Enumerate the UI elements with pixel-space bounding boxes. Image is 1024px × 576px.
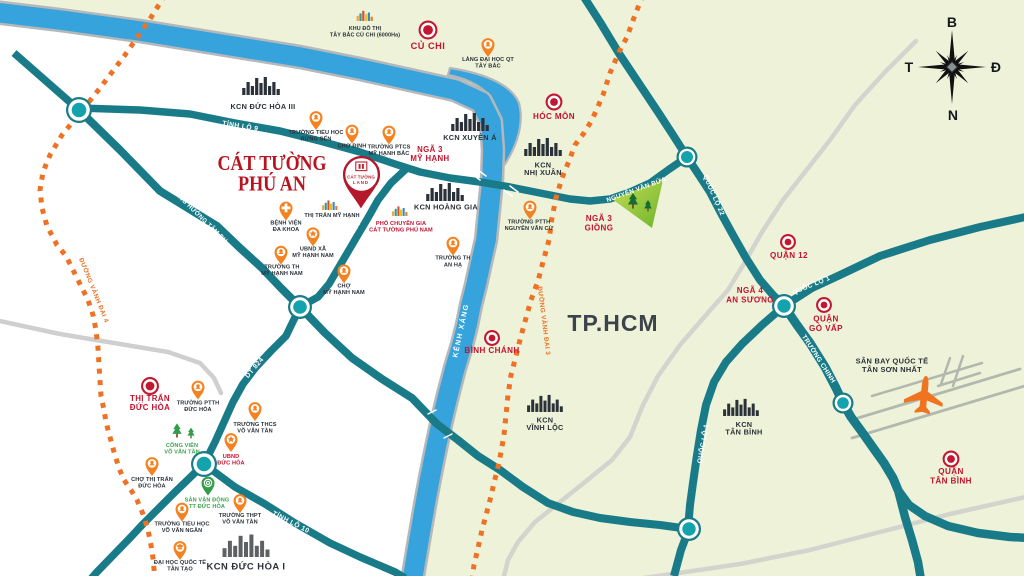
svg-text:HÓC MÔN: HÓC MÔN — [533, 112, 575, 121]
svg-text:TRƯỜNG TH: TRƯỜNG TH — [264, 263, 299, 271]
svg-text:TRƯỜNG TIỂU HỌC: TRƯỜNG TIỂU HỌC — [288, 128, 343, 136]
svg-text:MỸ HẠNH NAM: MỸ HẠNH NAM — [292, 252, 334, 259]
svg-text:TÂN TẠO: TÂN TẠO — [167, 566, 193, 573]
svg-text:TRƯỜNG TH: TRƯỜNG TH — [435, 254, 470, 262]
svg-text:GÒ VẤP: GÒ VẤP — [809, 323, 843, 333]
svg-text:ĐẠI HỌC QUỐC TẾ: ĐẠI HỌC QUỐC TẾ — [154, 559, 206, 566]
svg-text:ĐƯỜNG VÀNH ĐAI 3: ĐƯỜNG VÀNH ĐAI 3 — [536, 286, 553, 356]
svg-text:CHỢ ĐỊNH: CHỢ ĐỊNH — [338, 144, 367, 150]
svg-text:ĐỨC HÒA: ĐỨC HÒA — [138, 482, 165, 490]
svg-text:VÕ VĂN TẦN: VÕ VĂN TẦN — [237, 428, 273, 435]
svg-text:NGUYỄN VĂN CỪ: NGUYỄN VĂN CỪ — [505, 225, 554, 232]
svg-text:MỸ HẠNH NAM: MỸ HẠNH NAM — [261, 270, 303, 277]
svg-text:ĐA KHOA: ĐA KHOA — [273, 227, 300, 233]
svg-text:VÕ VĂN TẦN: VÕ VĂN TẦN — [164, 449, 200, 456]
svg-text:NGÃ 4: NGÃ 4 — [737, 286, 764, 295]
svg-text:LÀNG ĐẠI HỌC QT: LÀNG ĐẠI HỌC QT — [462, 56, 514, 63]
svg-text:TRƯỜNG CHINH: TRƯỜNG CHINH — [800, 333, 838, 385]
svg-text:QUỐC LỘ 22: QUỐC LỘ 22 — [701, 173, 728, 217]
svg-text:PHÚ AN: PHÚ AN — [238, 172, 306, 196]
svg-text:TRƯỜNG TIỂU HỌC: TRƯỜNG TIỂU HỌC — [154, 520, 209, 528]
svg-text:VĨNH LỘC: VĨNH LỘC — [526, 423, 564, 432]
svg-text:GIỒNG: GIỒNG — [585, 223, 614, 233]
svg-text:TRƯỜNG THPT: TRƯỜNG THPT — [219, 511, 262, 519]
svg-text:ĐỨC HÒA: ĐỨC HÒA — [130, 403, 170, 412]
svg-text:NHỊ XUÂN: NHỊ XUÂN — [524, 168, 562, 177]
svg-text:LAND: LAND — [353, 180, 369, 185]
svg-text:BÌNH CHÁNH: BÌNH CHÁNH — [464, 346, 519, 355]
svg-text:TRƯỜNG PTTH: TRƯỜNG PTTH — [177, 399, 220, 407]
svg-text:TP.HCM: TP.HCM — [567, 310, 658, 336]
svg-text:TÂN BÌNH: TÂN BÌNH — [930, 476, 972, 485]
svg-text:AN SƯƠNG: AN SƯƠNG — [726, 295, 774, 304]
svg-text:AN HẠ: AN HẠ — [444, 262, 462, 268]
svg-text:PHỐ CHUYÊN GIA: PHỐ CHUYÊN GIA — [376, 219, 426, 227]
svg-text:MỸ HẠNH: MỸ HẠNH — [410, 154, 449, 163]
svg-text:CÔNG VIÊN: CÔNG VIÊN — [166, 441, 198, 449]
svg-text:TRƯỜNG PTCS: TRƯỜNG PTCS — [368, 143, 411, 151]
svg-text:CÁT TƯỜNG: CÁT TƯỜNG — [347, 175, 375, 180]
svg-text:N: N — [948, 107, 958, 123]
svg-text:TRƯỜNG THCS: TRƯỜNG THCS — [233, 420, 276, 428]
svg-text:VÕ VĂN TẦN: VÕ VĂN TẦN — [222, 519, 258, 526]
svg-text:MỸ HẠNH BẮC: MỸ HẠNH BẮC — [369, 149, 410, 157]
svg-text:NGÃ 3: NGÃ 3 — [586, 214, 613, 223]
svg-text:CÁT TƯỜNG PHÚ NAM: CÁT TƯỜNG PHÚ NAM — [369, 226, 433, 234]
svg-text:KCN XUYÊN Á: KCN XUYÊN Á — [443, 133, 497, 142]
svg-text:KCN ĐỨC HÒA I: KCN ĐỨC HÒA I — [206, 561, 285, 572]
svg-text:ĐỨC HÒA: ĐỨC HÒA — [217, 459, 244, 467]
svg-text:THỊ TRẤN MỸ HẠNH: THỊ TRẤN MỸ HẠNH — [304, 212, 359, 219]
svg-text:CHỢ THỊ TRẤN: CHỢ THỊ TRẤN — [131, 476, 173, 483]
svg-text:ĐỨC HÒA: ĐỨC HÒA — [184, 405, 211, 413]
svg-text:BỆNH VIỆN: BỆNH VIỆN — [270, 219, 301, 227]
svg-text:QUẬN 12: QUẬN 12 — [770, 251, 808, 260]
svg-text:THỊ TRẤN: THỊ TRẤN — [130, 393, 170, 403]
svg-text:SÂN BAY QUỐC TẾ: SÂN BAY QUỐC TẾ — [856, 356, 929, 366]
svg-text:Đ: Đ — [991, 59, 1001, 75]
svg-text:MỸ HẠNH NAM: MỸ HẠNH NAM — [323, 289, 365, 296]
svg-text:T: T — [905, 59, 914, 75]
svg-text:CHỢ: CHỢ — [337, 283, 350, 289]
svg-text:VÕ VĂN NGÂN: VÕ VĂN NGÂN — [162, 527, 203, 534]
svg-text:B: B — [947, 14, 957, 30]
svg-text:UBND XÃ: UBND XÃ — [300, 245, 326, 252]
svg-text:TRƯỜNG PTTH: TRƯỜNG PTTH — [508, 218, 551, 226]
svg-text:TÂN SƠN NHẤT: TÂN SƠN NHẤT — [862, 364, 922, 374]
svg-text:TÂY BẮC CỦ CHI (6000Ha): TÂY BẮC CỦ CHI (6000Ha) — [330, 30, 400, 38]
svg-text:QUẬN: QUẬN — [813, 315, 838, 324]
svg-text:CỦ CHI: CỦ CHI — [411, 40, 446, 51]
svg-text:SÂN VẬN ĐỘNG: SÂN VẬN ĐỘNG — [185, 496, 230, 504]
svg-text:TT ĐỨC HÒA: TT ĐỨC HÒA — [189, 502, 225, 510]
svg-text:QUẬN: QUẬN — [938, 467, 963, 476]
svg-text:RỪNG SẾN: RỪNG SẾN — [301, 136, 332, 143]
svg-text:TÂN BÌNH: TÂN BÌNH — [725, 428, 762, 437]
svg-text:KHU ĐÔ THỊ: KHU ĐÔ THỊ — [349, 24, 382, 32]
svg-text:NGÃ 3: NGÃ 3 — [417, 145, 443, 154]
svg-text:UBND: UBND — [223, 454, 240, 460]
svg-text:KCN HOÀNG GIA: KCN HOÀNG GIA — [414, 203, 478, 212]
svg-text:KCN ĐỨC HÒA III: KCN ĐỨC HÒA III — [230, 102, 295, 111]
svg-text:TÂY BẮC: TÂY BẮC — [475, 62, 500, 70]
